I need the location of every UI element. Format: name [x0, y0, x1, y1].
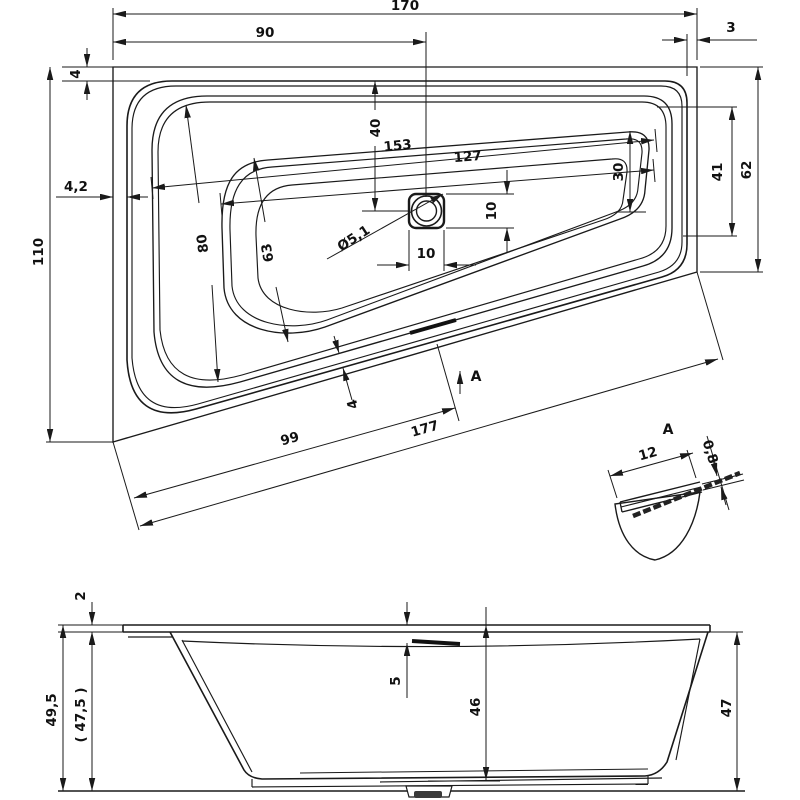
- dim-gap-left: 4,2: [64, 179, 88, 195]
- dim-inner-depth-left: 80: [194, 233, 212, 254]
- dim-basin-length: 127: [453, 148, 482, 166]
- dim-gap-top: 4: [68, 69, 84, 78]
- dim-height-alt: ( 47,5 ): [73, 687, 89, 742]
- label-section-arrow: A: [471, 369, 482, 385]
- dim-overall-width: 170: [391, 0, 419, 14]
- dim-drain-offset-left: 90: [256, 25, 275, 41]
- dim-drain-offset-top: 40: [368, 119, 384, 138]
- dim-overall-depth-right: 62: [739, 161, 755, 180]
- drawing-canvas: 170 90 3 4 4,2 110: [0, 0, 800, 800]
- dim-inner-depth-right: 41: [710, 163, 726, 182]
- dim-basin-depth-left: 63: [259, 242, 278, 263]
- technical-drawing-bathtub: 170 90 3 4 4,2 110: [0, 0, 800, 800]
- dim-inner-length: 153: [383, 137, 413, 156]
- dim-gap-right: 3: [726, 20, 735, 36]
- dim-inner-depth: 46: [468, 698, 484, 717]
- dim-height-right: 47: [719, 699, 735, 718]
- drain-trap-body: [414, 791, 442, 798]
- dim-height-overall: 49,5: [44, 693, 60, 726]
- dim-drain-width: 10: [417, 246, 436, 262]
- dim-drain-height: 10: [484, 202, 500, 221]
- dim-overflow-offset: 5: [388, 676, 404, 685]
- dim-overall-depth-left: 110: [31, 238, 47, 266]
- dim-rim-thickness: 2: [73, 591, 89, 600]
- label-detail-a: A: [663, 422, 674, 438]
